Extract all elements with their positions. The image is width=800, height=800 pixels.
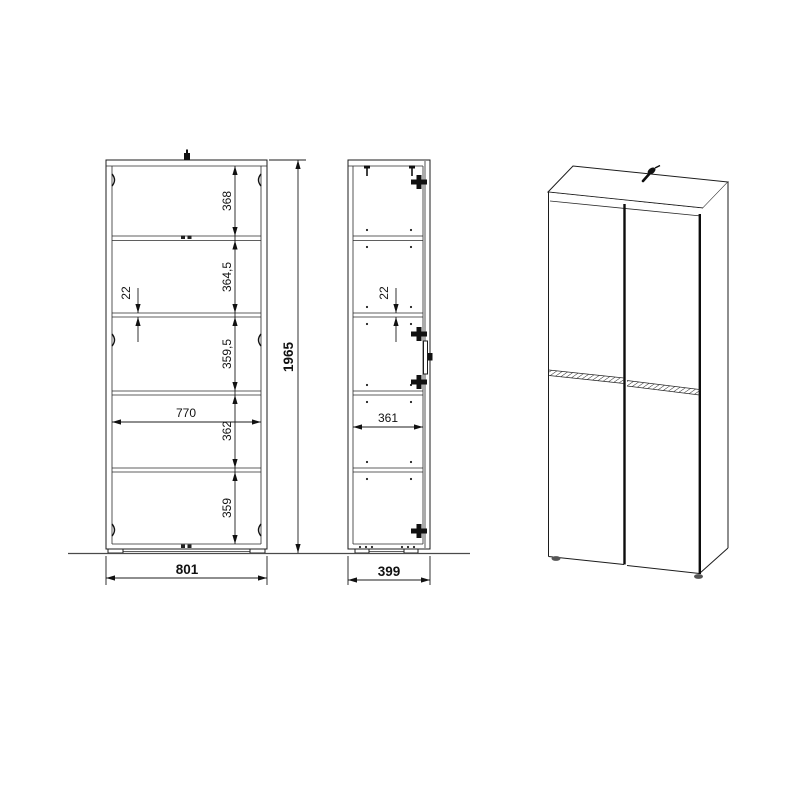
cam-mark: [188, 545, 192, 549]
side-overall-depth: 399: [378, 564, 401, 579]
cam-mark: [181, 236, 185, 240]
dim-overall-depth: 399: [348, 556, 430, 585]
side-shelf-thickness: 22: [377, 286, 391, 300]
front-overall-width: 801: [176, 562, 199, 577]
front-overall-height: 1965: [281, 341, 296, 372]
front-view: 368 364,5 359,5 362 359 22 770 1965: [106, 150, 306, 586]
front-shelf-thickness: 22: [119, 286, 133, 300]
plinth: [108, 549, 265, 553]
front-inner-width: 770: [176, 406, 196, 420]
cam-mark: [188, 236, 192, 240]
plinth-side: [355, 549, 418, 553]
handle-icon: [424, 341, 433, 374]
side-view: 22 361 399: [348, 160, 433, 585]
key-icon: [184, 150, 190, 161]
front-section-3-height: 359,5: [220, 339, 234, 369]
cabinet-technical-drawing: 368 364,5 359,5 362 359 22 770 1965: [0, 0, 800, 800]
dim-overall-width: 801: [106, 556, 267, 585]
side-inner-depth: 361: [378, 411, 398, 425]
front-section-1-height: 368: [220, 191, 234, 211]
front-section-5-height: 359: [220, 498, 234, 518]
front-section-4-height: 362: [220, 421, 234, 441]
foot: [552, 556, 561, 561]
cam-mark: [181, 545, 185, 549]
foot: [694, 574, 703, 579]
dim-overall-height: 1965: [269, 160, 306, 553]
perspective-view: [548, 166, 728, 579]
front-section-2-height: 364,5: [220, 262, 234, 292]
